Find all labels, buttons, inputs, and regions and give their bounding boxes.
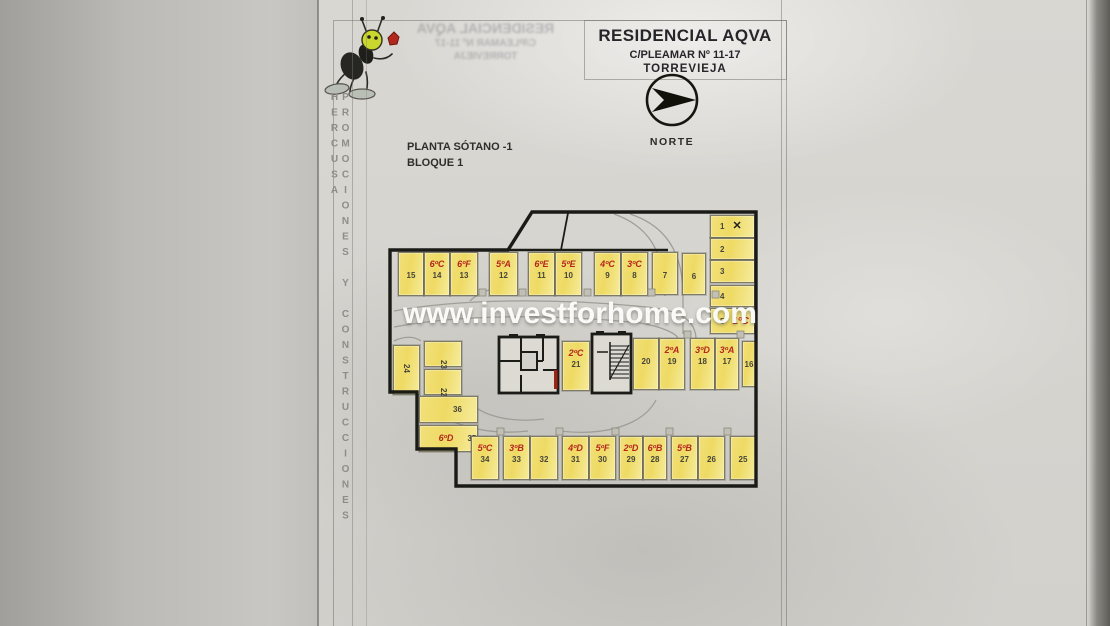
stall-number: 6: [692, 272, 696, 281]
parking-stall-29: 2ºD29: [619, 436, 643, 480]
parking-stall-16: 16: [742, 341, 756, 387]
parking-stall-26: 26: [698, 436, 725, 480]
unit-label: 2ºA: [665, 346, 680, 355]
parking-stall-31: 4ºD31: [562, 436, 589, 480]
unit-label: 6ºC: [430, 260, 445, 269]
stall-number: 20: [642, 357, 651, 366]
scanned-floorplan-photo: RESIDENCIAL AQVA C/PLEAMAR Nº 11-17 TORR…: [0, 0, 1110, 626]
unit-label: 4ºD: [568, 444, 583, 453]
stall-number: 27: [680, 455, 689, 464]
parking-stall-12: 5ºA12: [489, 252, 518, 296]
x-mark-icon: ✕: [732, 221, 741, 232]
parking-stall-3: 3: [710, 260, 755, 283]
stall-number: 26: [707, 455, 716, 464]
stall-number: 10: [564, 271, 573, 280]
unit-label: 3ºC: [627, 260, 642, 269]
stall-number: 9: [605, 271, 609, 280]
stall-number: 13: [460, 271, 469, 280]
parking-stall-17: 3ºA17: [715, 338, 739, 390]
parking-stall-22: 22: [424, 369, 462, 395]
unit-label: 5ºF: [596, 444, 610, 453]
paper-crease: [1086, 0, 1087, 626]
parking-stall-14: 6ºC14: [424, 252, 450, 296]
developer-side-text: PROMOCIONES Y CONSTRUCCIONES HERCUSA: [329, 92, 351, 617]
paper-crease: [352, 0, 353, 626]
unit-label: 6ºD: [439, 434, 454, 443]
unit-label: 2ºC: [569, 349, 584, 358]
parking-stall-13: 6ºF13: [450, 252, 478, 296]
unit-label: 5ºA: [496, 260, 511, 269]
stall-number: 21: [572, 360, 581, 369]
parking-stall-15: 15: [398, 252, 424, 296]
parking-stall-28: 6ºB28: [643, 436, 667, 480]
parking-stall-11: 6ºE11: [528, 252, 555, 296]
stall-number: 1: [720, 222, 724, 231]
parking-stall-1: 1✕: [710, 215, 755, 238]
stall-number: 15: [407, 271, 416, 280]
parking-stall-18: 3ºD18: [690, 338, 715, 390]
unit-label: 3ºA: [720, 346, 735, 355]
stall-number: 14: [433, 271, 442, 280]
stall-number: 18: [698, 357, 707, 366]
parking-stall-8: 3ºC8: [621, 252, 648, 296]
parking-stall-19: 2ºA19: [659, 338, 685, 390]
unit-label: 5ºC: [478, 444, 493, 453]
parking-stall-21: 2ºC21: [562, 341, 590, 391]
parking-stall-24: 24: [393, 345, 420, 395]
parking-stall-6: 6: [682, 253, 706, 295]
parking-stall-36: 36: [419, 396, 478, 423]
stall-number: 19: [668, 357, 677, 366]
parking-stall-32: 32: [530, 436, 558, 480]
stall-number: 11: [537, 271, 545, 280]
stall-number: 3: [720, 267, 724, 276]
unit-label: 6ºB: [648, 444, 663, 453]
stall-number: 8: [632, 271, 636, 280]
stall-number: 23: [439, 360, 448, 369]
parking-stall-30: 5ºF30: [589, 436, 616, 480]
parking-stall-2: 2: [710, 238, 755, 260]
parking-stall-25: 25: [730, 436, 756, 480]
parking-stall-23: 23: [424, 341, 462, 367]
unit-label: 3ºD: [695, 346, 710, 355]
parking-stall-35: 6ºD35: [419, 425, 478, 452]
parking-stall-27: 5ºB27: [671, 436, 698, 480]
stall-number: 36: [453, 405, 462, 414]
stall-number: 34: [481, 455, 490, 464]
stall-number: 32: [540, 455, 549, 464]
stall-number: 33: [512, 455, 521, 464]
stall-number: 25: [739, 455, 748, 464]
stall-number: 7: [663, 271, 667, 280]
parking-stall-10: 5ºE10: [555, 252, 582, 296]
parking-stall-20: 20: [633, 338, 659, 390]
parking-stall-7: 7: [652, 252, 678, 295]
paper-crease: [781, 0, 782, 626]
unit-label: 6ºE: [534, 260, 548, 269]
paper-right-shadow: [1088, 0, 1110, 626]
unit-label: 4ºC: [600, 260, 615, 269]
parking-stall-34: 5ºC34: [471, 436, 499, 480]
stall-number: 12: [499, 271, 508, 280]
stall-number: 24: [402, 364, 411, 373]
stall-number: 16: [745, 360, 754, 369]
watermark: www.investforhome.com: [403, 297, 757, 331]
paper-crease: [317, 0, 319, 626]
parking-stall-9: 4ºC9: [594, 252, 621, 296]
unit-label: 2ºD: [624, 444, 639, 453]
stall-number: 29: [627, 455, 636, 464]
paper-crease: [366, 0, 367, 626]
stall-number: 31: [571, 455, 580, 464]
unit-label: 6ºF: [457, 260, 471, 269]
stall-number: 17: [723, 357, 732, 366]
parking-stall-33: 3ºB33: [503, 436, 530, 480]
stall-number: 28: [651, 455, 660, 464]
unit-label: 3ºB: [509, 444, 524, 453]
stall-number: 30: [598, 455, 607, 464]
stall-number: 2: [720, 245, 724, 254]
unit-label: 5ºB: [677, 444, 692, 453]
unit-label: 5ºE: [561, 260, 575, 269]
